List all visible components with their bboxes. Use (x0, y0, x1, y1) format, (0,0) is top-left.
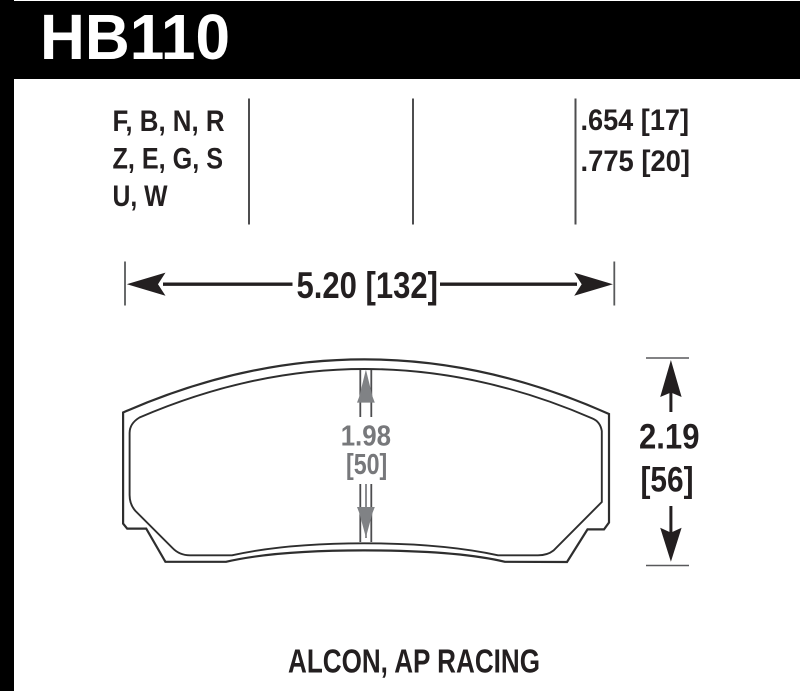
svg-text:2.19: 2.19 (639, 417, 700, 456)
svg-text:F, B, N, R: F, B, N, R (113, 105, 225, 138)
svg-text:.775 [20]: .775 [20] (581, 145, 691, 178)
svg-text:HB110: HB110 (40, 1, 230, 73)
svg-text:[56]: [56] (641, 461, 694, 500)
svg-text:ALCON, AP RACING: ALCON, AP RACING (288, 643, 540, 680)
svg-text:1.98: 1.98 (341, 420, 391, 452)
svg-text:Z, E, G, S: Z, E, G, S (113, 143, 224, 176)
svg-text:.654 [17]: .654 [17] (581, 104, 690, 137)
svg-text:U, W: U, W (113, 180, 169, 213)
svg-text:5.20 [132]: 5.20 [132] (297, 264, 439, 306)
svg-text:[50]: [50] (346, 449, 387, 481)
